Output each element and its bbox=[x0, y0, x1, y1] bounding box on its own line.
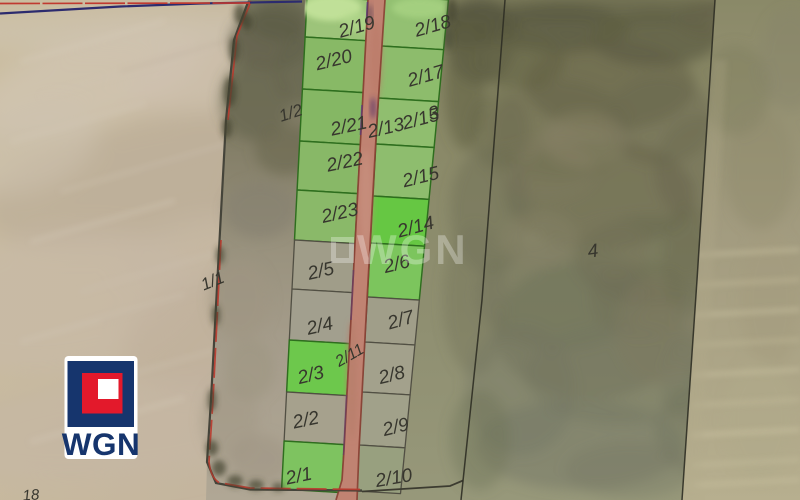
svg-text:WGN: WGN bbox=[357, 226, 469, 273]
svg-text:WGN: WGN bbox=[62, 426, 140, 462]
svg-text:18: 18 bbox=[22, 486, 41, 500]
